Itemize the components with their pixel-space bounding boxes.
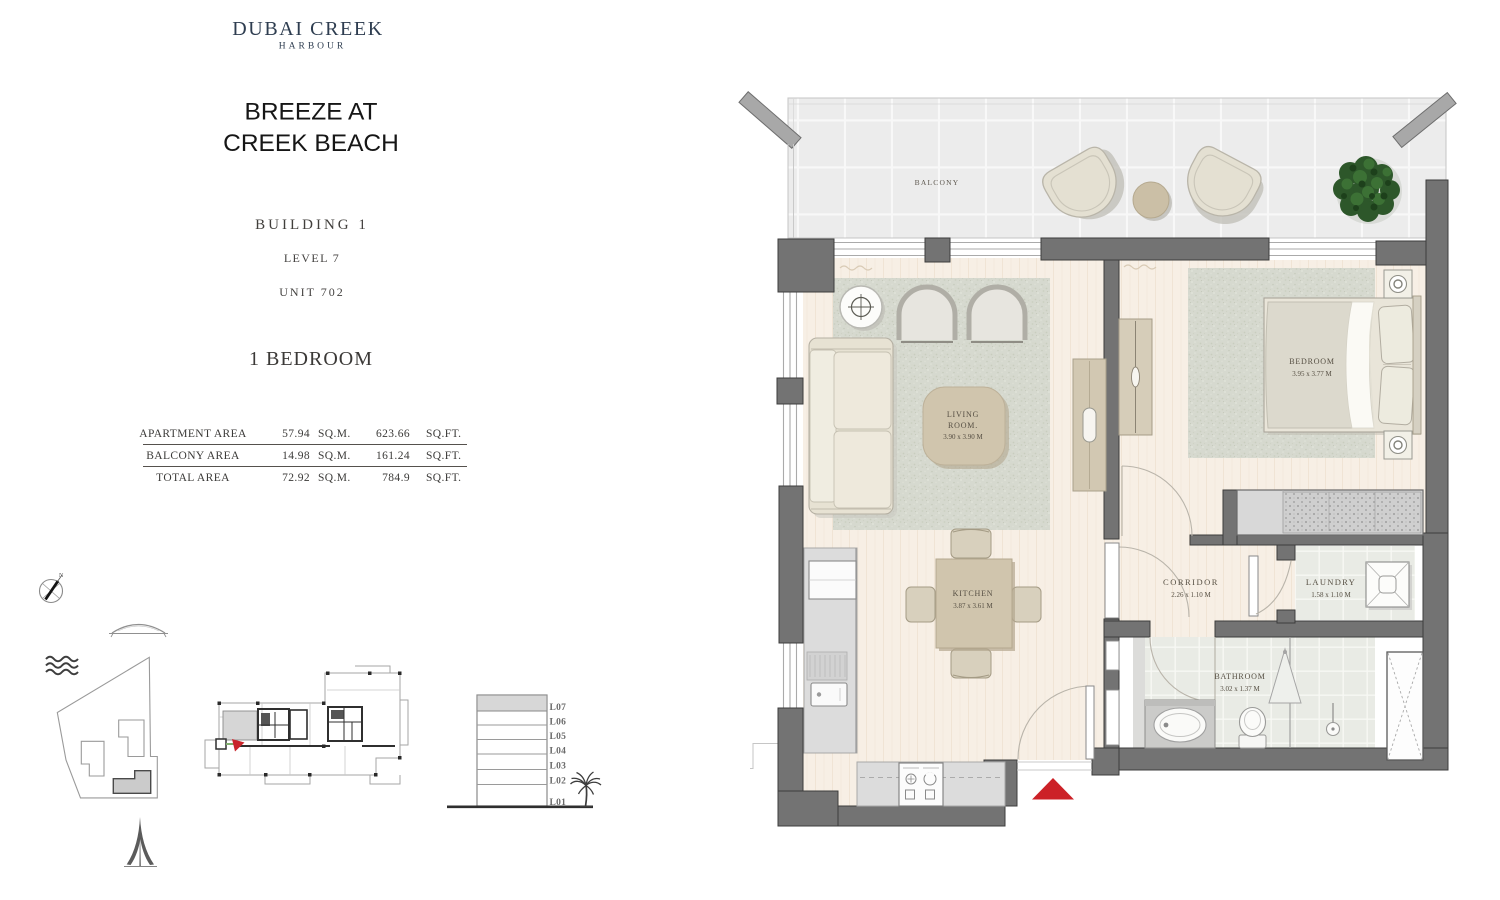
svg-text:L02: L02 bbox=[550, 777, 567, 787]
svg-text:N: N bbox=[59, 573, 64, 579]
svg-text:L03: L03 bbox=[550, 762, 567, 772]
svg-text:L04: L04 bbox=[550, 747, 567, 757]
svg-text:LIVING: LIVING bbox=[947, 410, 979, 419]
svg-text:1.58 x 1.10 M: 1.58 x 1.10 M bbox=[1311, 591, 1351, 599]
svg-text:784.9: 784.9 bbox=[382, 472, 410, 484]
svg-text:SQ.M.: SQ.M. bbox=[318, 472, 351, 484]
svg-text:161.24: 161.24 bbox=[376, 450, 410, 462]
svg-text:DUBAI CREEK: DUBAI CREEK bbox=[232, 18, 384, 40]
svg-text:3.95 x 3.77 M: 3.95 x 3.77 M bbox=[1292, 370, 1332, 378]
svg-text:L07: L07 bbox=[550, 703, 567, 713]
svg-text:TOTAL AREA: TOTAL AREA bbox=[156, 472, 230, 484]
svg-text:BREEZE AT: BREEZE AT bbox=[245, 99, 378, 126]
svg-text:BUILDING 1: BUILDING 1 bbox=[255, 217, 369, 233]
svg-text:LEVEL 7: LEVEL 7 bbox=[284, 251, 340, 265]
svg-text:BALCONY: BALCONY bbox=[915, 178, 960, 187]
svg-text:SQ.FT.: SQ.FT. bbox=[426, 428, 461, 440]
svg-text:2.26 x 1.10 M: 2.26 x 1.10 M bbox=[1171, 591, 1211, 599]
svg-text:SQ.FT.: SQ.FT. bbox=[426, 450, 461, 462]
svg-text:CORRIDOR: CORRIDOR bbox=[1163, 577, 1219, 587]
svg-text:KITCHEN: KITCHEN bbox=[953, 589, 994, 598]
svg-text:BATHROOM: BATHROOM bbox=[1214, 672, 1265, 681]
svg-text:CREEK BEACH: CREEK BEACH bbox=[223, 130, 399, 157]
svg-text:L05: L05 bbox=[550, 732, 567, 742]
svg-text:SQ.M.: SQ.M. bbox=[318, 450, 351, 462]
svg-text:L06: L06 bbox=[550, 718, 567, 728]
svg-text:BEDROOM: BEDROOM bbox=[1289, 357, 1335, 366]
svg-text:SQ.M.: SQ.M. bbox=[318, 428, 351, 440]
svg-text:3.02 x 1.37 M: 3.02 x 1.37 M bbox=[1220, 685, 1260, 693]
svg-text:72.92: 72.92 bbox=[282, 472, 310, 484]
svg-text:LAUNDRY: LAUNDRY bbox=[1306, 577, 1356, 587]
svg-text:623.66: 623.66 bbox=[376, 428, 410, 440]
svg-text:APARTMENT AREA: APARTMENT AREA bbox=[139, 428, 247, 440]
svg-text:UNIT 702: UNIT 702 bbox=[279, 285, 344, 299]
svg-text:3.87 x 3.61 M: 3.87 x 3.61 M bbox=[953, 602, 993, 610]
svg-text:BALCONY AREA: BALCONY AREA bbox=[146, 450, 240, 462]
svg-text:3.90 x 3.90 M: 3.90 x 3.90 M bbox=[943, 433, 983, 441]
svg-text:ROOM.: ROOM. bbox=[948, 421, 978, 430]
svg-text:SQ.FT.: SQ.FT. bbox=[426, 472, 461, 484]
svg-text:1 BEDROOM: 1 BEDROOM bbox=[249, 348, 373, 370]
svg-text:14.98: 14.98 bbox=[282, 450, 310, 462]
svg-text:HARBOUR: HARBOUR bbox=[279, 42, 346, 52]
svg-text:57.94: 57.94 bbox=[282, 428, 310, 440]
